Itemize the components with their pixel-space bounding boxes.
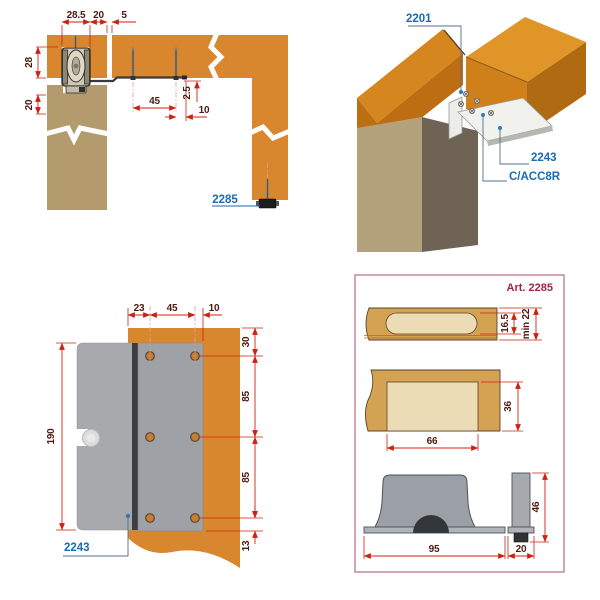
technical-drawing-sheet: 28.5 20 5 28 20 45 2.5 10 2285 xyxy=(0,0,600,600)
front-view-plate: 23 45 10 30 85 85 13 190 2243 xyxy=(46,303,263,568)
dim-left-margin: 23 xyxy=(134,303,145,314)
fitting-side-wheel xyxy=(514,533,528,542)
hinge-strip xyxy=(132,343,138,530)
dim-hole-spacing-v2: 85 xyxy=(241,472,252,483)
knob-highlight xyxy=(87,434,96,443)
leader-dot xyxy=(126,514,130,518)
fitting-side-flange xyxy=(508,527,534,533)
dim-roller-height: 28 xyxy=(24,57,35,68)
part-label-2285: 2285 xyxy=(212,194,238,206)
dim-body-height: 46 xyxy=(531,501,542,512)
dim-panel-reveal: 20 xyxy=(24,99,35,110)
leader-dot xyxy=(481,113,485,117)
dim-plate-offset: 2.5 xyxy=(182,86,193,100)
part-label-accessory: C/ACC8R xyxy=(509,171,561,183)
fitting-side-body xyxy=(512,473,530,527)
dim-pocket-width: 66 xyxy=(427,436,438,447)
part-label-2243: 2243 xyxy=(64,542,90,554)
dim-slot-depth: 16.5 xyxy=(500,314,511,333)
frame-panel-vertical xyxy=(252,78,288,200)
dim-base-width: 95 xyxy=(429,544,440,555)
dim-gap: 5 xyxy=(121,10,127,21)
dim-min-thickness: min 22 xyxy=(521,308,532,339)
lower-panel xyxy=(47,85,107,210)
dim-hole-spacing-v1: 85 xyxy=(241,391,252,402)
dim-pocket-depth: 36 xyxy=(503,401,514,412)
dim-roller-width: 28.5 xyxy=(67,10,86,21)
part-label-2243-iso: 2243 xyxy=(531,152,557,164)
dim-hole-spacing-h: 45 xyxy=(167,303,178,314)
leader-dot xyxy=(459,90,463,94)
part-label-2201: 2201 xyxy=(406,13,432,25)
bracket-end xyxy=(182,76,187,80)
milled-pocket xyxy=(387,382,478,431)
dim-screw-spacing: 45 xyxy=(149,96,160,107)
dim-edge-distance: 10 xyxy=(199,105,210,116)
milled-slot xyxy=(386,313,477,334)
dim-bottom-margin: 13 xyxy=(241,540,252,551)
dim-base-depth: 20 xyxy=(516,544,527,555)
drawing-svg: 28.5 20 5 28 20 45 2.5 10 2285 xyxy=(0,0,600,600)
dim-top-margin: 30 xyxy=(241,336,252,347)
post-front-face xyxy=(357,117,422,252)
dim-offset: 20 xyxy=(93,10,104,21)
dim-plate-height: 190 xyxy=(46,428,57,445)
dim-right-margin: 10 xyxy=(209,303,220,314)
frame-panel-horizontal xyxy=(112,35,288,78)
section-view-top: 28.5 20 5 28 20 45 2.5 10 2285 xyxy=(24,10,290,210)
detail-box-2285: Art. 2285 16.5 min 22 xyxy=(355,275,564,572)
isometric-view: 2201 2243 C/ACC8R xyxy=(357,13,586,252)
leader-dot xyxy=(498,126,502,130)
detail-box-title: Art. 2285 xyxy=(507,282,553,294)
